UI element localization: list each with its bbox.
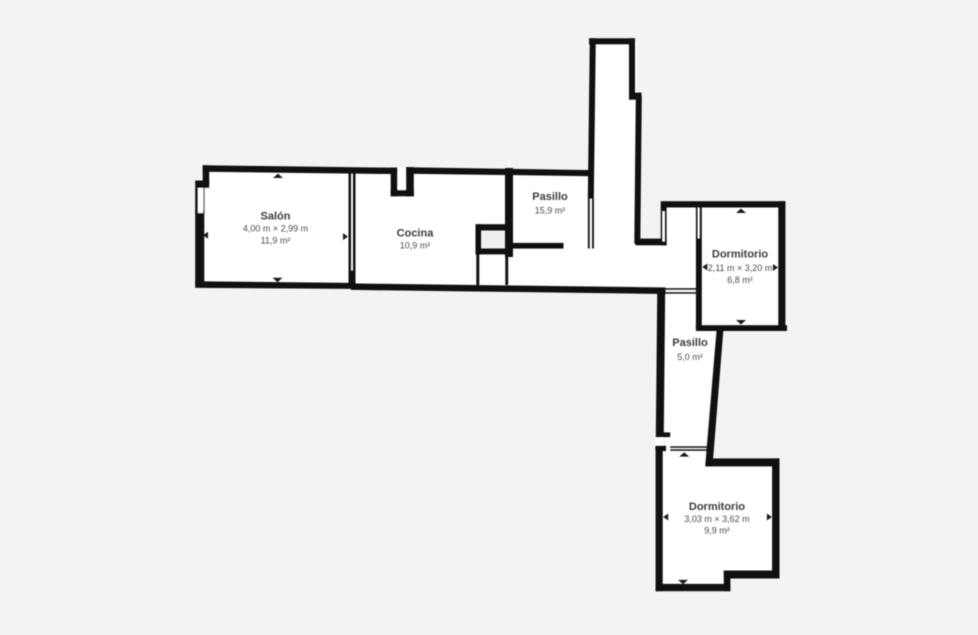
svg-text:Salón: Salón — [261, 211, 291, 223]
svg-text:10,9 m²: 10,9 m² — [400, 240, 431, 250]
svg-text:Dormitorio: Dormitorio — [689, 501, 746, 513]
svg-text:Pasillo: Pasillo — [532, 191, 568, 203]
svg-text:11,9 m²: 11,9 m² — [261, 236, 291, 246]
svg-text:9,9 m²: 9,9 m² — [704, 526, 730, 536]
svg-text:Pasillo: Pasillo — [672, 337, 708, 349]
svg-text:Dormitorio: Dormitorio — [712, 249, 769, 261]
svg-text:2,11 m × 3,20 m: 2,11 m × 3,20 m — [708, 263, 773, 273]
svg-text:4,00 m × 2,99 m: 4,00 m × 2,99 m — [243, 224, 308, 234]
svg-text:3,03 m × 3,62 m: 3,03 m × 3,62 m — [684, 514, 749, 524]
svg-text:6,8 m²: 6,8 m² — [727, 275, 753, 285]
svg-text:5,0 m²: 5,0 m² — [677, 352, 703, 362]
svg-text:15,9 m²: 15,9 m² — [535, 205, 566, 215]
svg-text:Cocina: Cocina — [397, 227, 435, 239]
